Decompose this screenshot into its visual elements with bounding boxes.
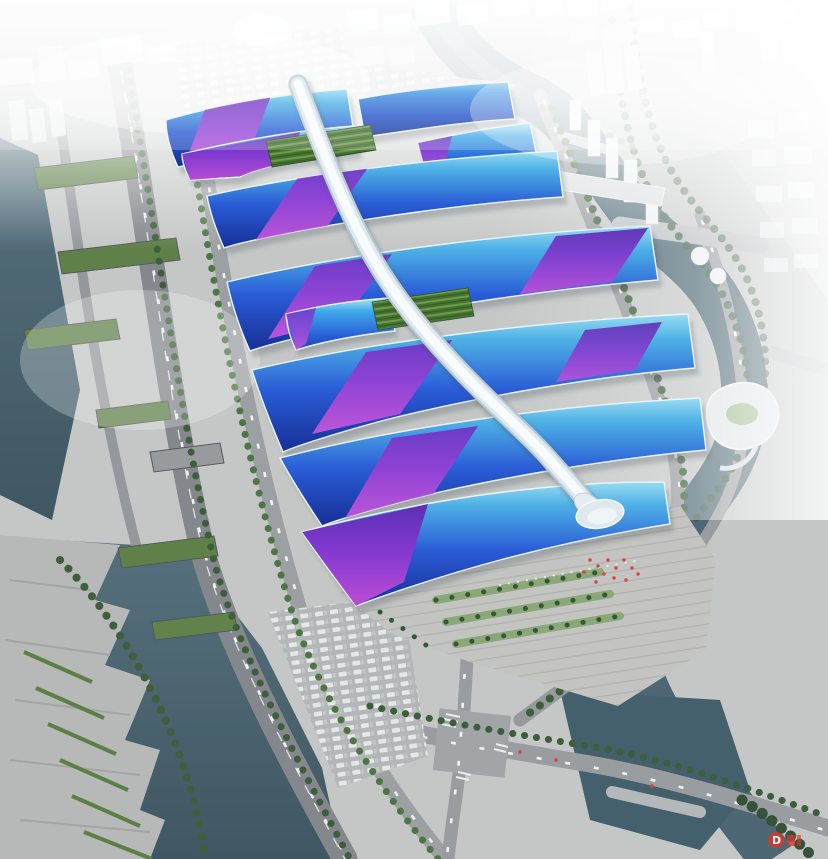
haze-patch-ne bbox=[470, 55, 770, 165]
haze-patch-west bbox=[20, 290, 260, 430]
scene-svg: D bbox=[0, 0, 828, 859]
watermark-logo-letter: D bbox=[772, 834, 781, 847]
watermark-mark-1 bbox=[787, 835, 795, 846]
watermark-mark-2 bbox=[797, 835, 801, 846]
aerial-rendering-canvas: D bbox=[0, 0, 828, 859]
